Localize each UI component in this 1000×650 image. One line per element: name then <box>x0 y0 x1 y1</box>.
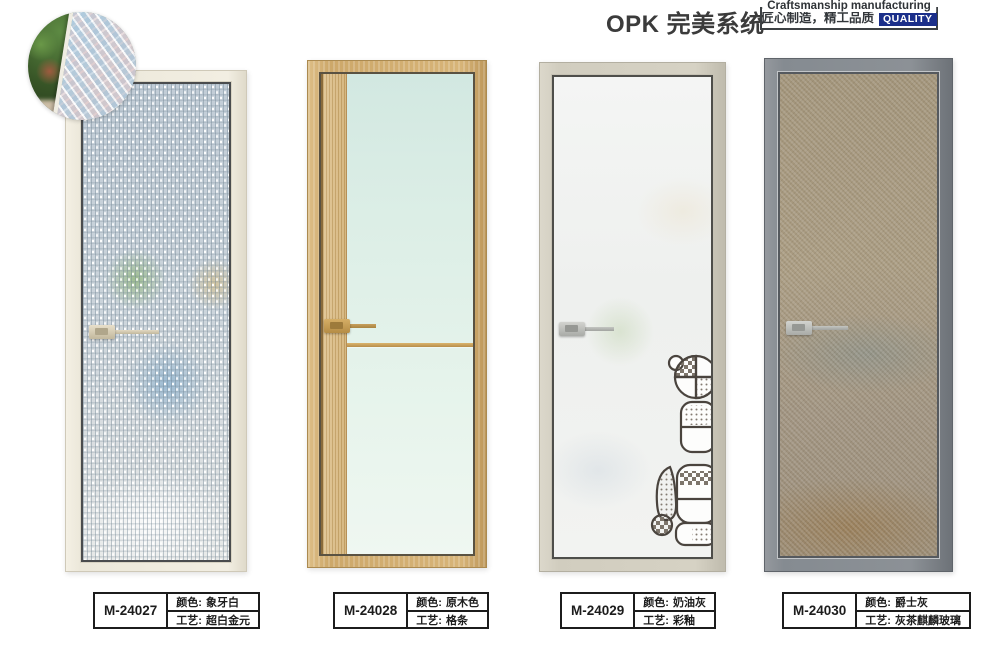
color-key: 颜色: <box>416 594 442 610</box>
door-leaf-edge <box>778 72 939 558</box>
door-handle <box>324 324 376 328</box>
color-key: 颜色: <box>176 594 202 610</box>
color-key: 颜色: <box>643 594 669 610</box>
product-label-3: M-24029 颜色: 奶油灰 工艺: 彩釉 <box>560 592 716 629</box>
craft-value: 超白金元 <box>206 612 250 628</box>
door-handle <box>89 330 159 334</box>
color-value: 爵士灰 <box>895 594 928 610</box>
model-number: M-24029 <box>562 594 635 627</box>
door-card-4 <box>764 58 953 572</box>
door-frame-ivory <box>65 70 247 572</box>
color-row: 颜色: 象牙白 <box>168 594 258 612</box>
door-leaf-edge <box>552 75 713 559</box>
door-glass-mint <box>347 74 473 554</box>
catalog-page: OPK 完美系统 Craftsmanship manufacturing 匠心制… <box>0 0 1000 650</box>
door-leaf-edge <box>81 82 231 562</box>
quality-tag: QUALITY <box>879 13 937 27</box>
color-value: 奶油灰 <box>673 594 706 610</box>
page-title: OPK 完美系统 <box>606 4 765 39</box>
craft-row: 工艺: 彩釉 <box>635 612 714 628</box>
door-card-3 <box>539 62 726 572</box>
craft-key: 工艺: <box>643 612 669 628</box>
bearbrick-graphic <box>640 353 711 553</box>
craft-key: 工艺: <box>865 612 891 628</box>
craft-key: 工艺: <box>176 612 202 628</box>
door-card-1 <box>65 70 247 572</box>
product-label-2: M-24028 颜色: 原木色 工艺: 格条 <box>333 592 489 629</box>
door-card-2 <box>307 60 487 568</box>
product-label-4: M-24030 颜色: 爵士灰 工艺: 灰茶麒麟玻璃 <box>782 592 971 629</box>
horizontal-grille-bar <box>347 343 473 347</box>
quality-badge-box: Craftsmanship manufacturing 匠心制造，精工品质 QU… <box>760 7 938 30</box>
model-number: M-24027 <box>95 594 168 627</box>
door-handle <box>559 327 614 331</box>
color-row: 颜色: 奶油灰 <box>635 594 714 612</box>
door-glass-diamond <box>83 84 229 560</box>
glass-texture-inset-photo <box>28 12 136 120</box>
model-number: M-24030 <box>784 594 857 627</box>
color-value: 象牙白 <box>206 594 239 610</box>
color-row: 颜色: 原木色 <box>408 594 487 612</box>
door-glass-frosted <box>554 77 711 557</box>
door-glass-tea-kirin <box>780 74 937 556</box>
door-frame-wood <box>307 60 487 568</box>
color-row: 颜色: 爵士灰 <box>857 594 969 612</box>
door-handle <box>786 326 848 330</box>
door-frame-jazz-gray <box>764 58 953 572</box>
model-number: M-24028 <box>335 594 408 627</box>
door-leaf-edge <box>319 72 475 556</box>
craft-value: 彩釉 <box>673 612 695 628</box>
wood-stile <box>321 74 347 554</box>
badge-english-line: Craftsmanship manufacturing <box>762 0 936 12</box>
color-key: 颜色: <box>865 594 891 610</box>
craft-value: 灰茶麒麟玻璃 <box>895 612 961 628</box>
craft-row: 工艺: 灰茶麒麟玻璃 <box>857 612 969 628</box>
craft-row: 工艺: 格条 <box>408 612 487 628</box>
inset-diamond-glass <box>51 12 136 120</box>
craft-row: 工艺: 超白金元 <box>168 612 258 628</box>
product-label-1: M-24027 颜色: 象牙白 工艺: 超白金元 <box>93 592 260 629</box>
craft-key: 工艺: <box>416 612 442 628</box>
craft-value: 格条 <box>446 612 468 628</box>
color-value: 原木色 <box>446 594 479 610</box>
door-frame-cream-gray <box>539 62 726 572</box>
